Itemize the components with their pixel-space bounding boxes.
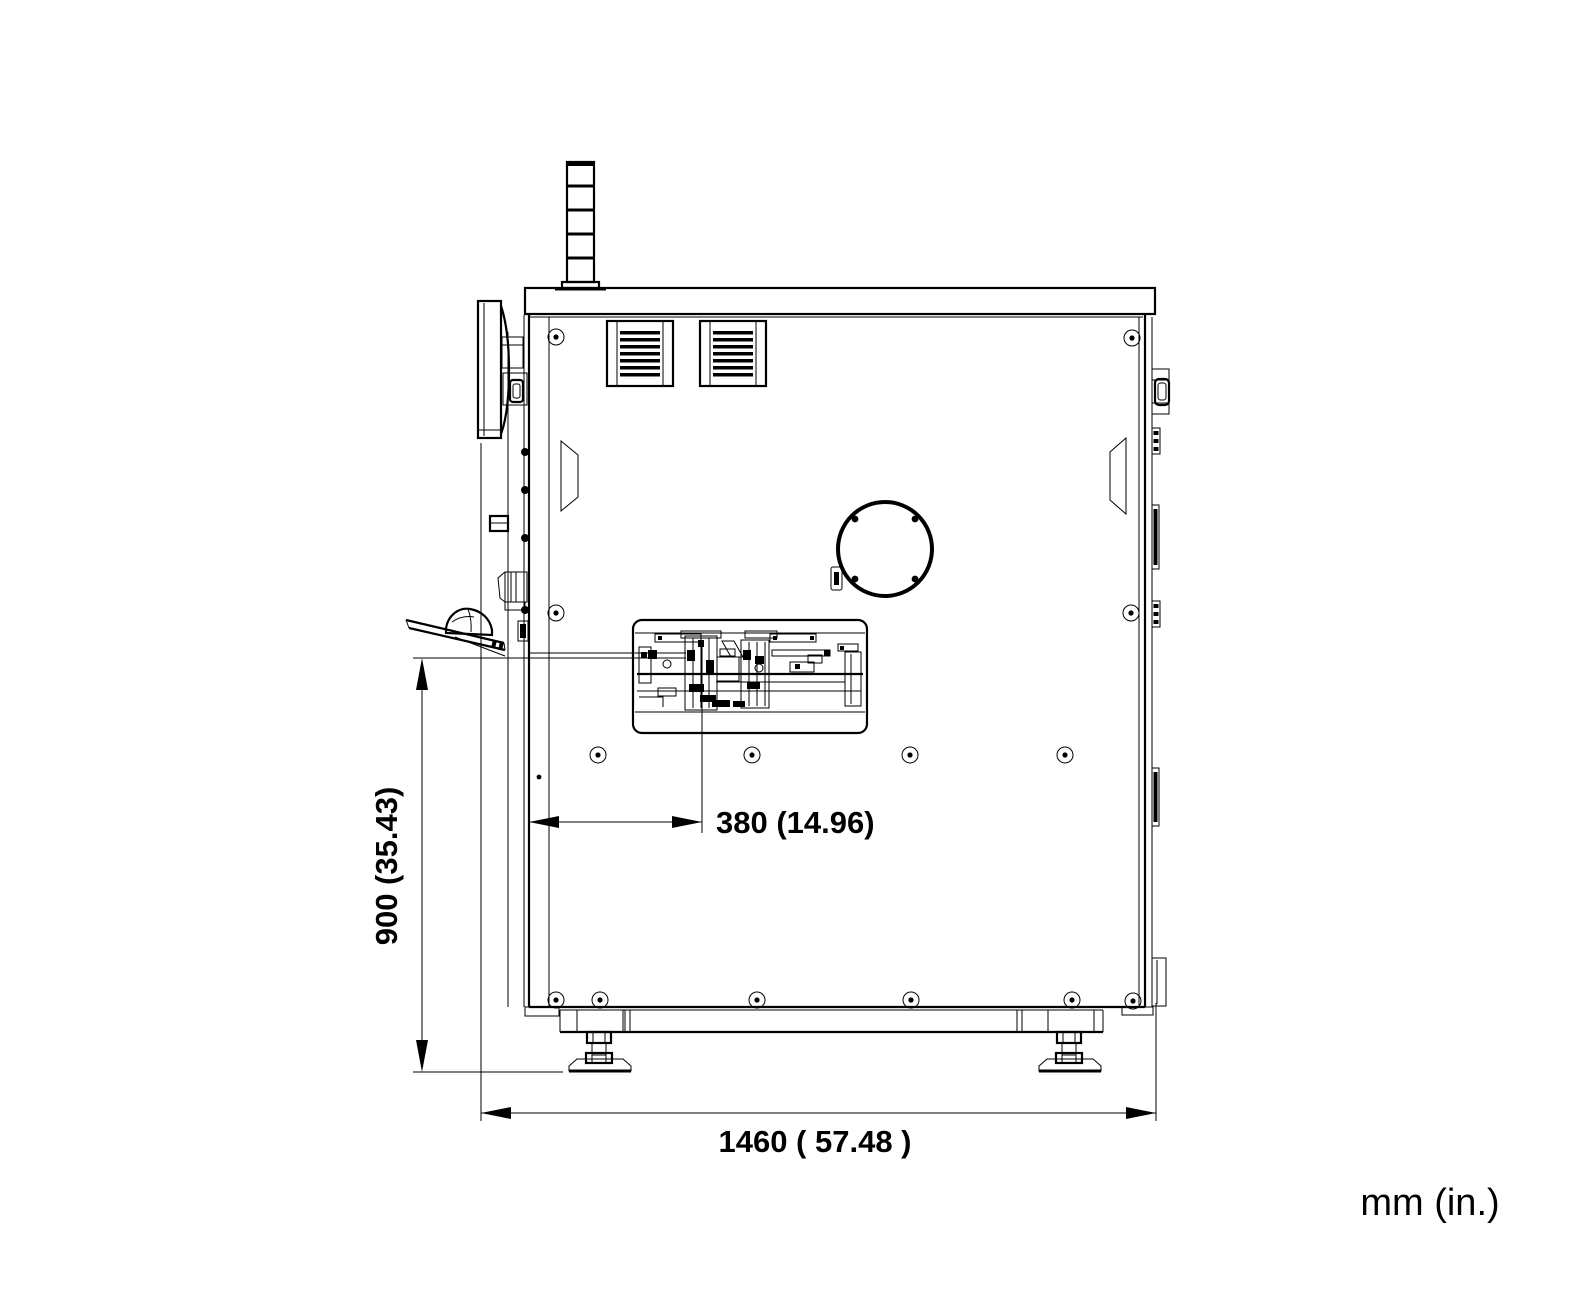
mechanism-carriage-right bbox=[741, 631, 777, 708]
leveling-foot-left bbox=[569, 1010, 631, 1071]
screw-icon bbox=[1057, 747, 1073, 763]
base-frame bbox=[560, 1010, 1103, 1032]
vent-right bbox=[700, 321, 766, 386]
rail-bump bbox=[521, 448, 529, 456]
small-screw-dot bbox=[537, 775, 542, 780]
hinge-strip bbox=[1152, 768, 1159, 826]
dimensions: 900 (35.43) 380 (14.96) 1460 ( 57.48 ) m… bbox=[369, 443, 1500, 1224]
hinge-strip bbox=[1152, 505, 1159, 569]
drawing-page: 900 (35.43) 380 (14.96) 1460 ( 57.48 ) m… bbox=[0, 0, 1576, 1301]
screw-icon bbox=[749, 992, 765, 1008]
screw-icon bbox=[902, 747, 918, 763]
screw-icon bbox=[592, 992, 608, 1008]
side-tab bbox=[490, 516, 508, 531]
dimension-height-label: 900 (35.43) bbox=[369, 787, 404, 946]
screw-icon bbox=[1124, 330, 1140, 346]
bottom-right-plate bbox=[1152, 958, 1166, 1006]
monitor-mount bbox=[502, 337, 527, 405]
panel-screws bbox=[537, 329, 1141, 1009]
machine-side-view-drawing: 900 (35.43) 380 (14.96) 1460 ( 57.48 ) m… bbox=[0, 0, 1576, 1301]
hinge-strip bbox=[1152, 601, 1160, 627]
screw-icon bbox=[548, 329, 564, 345]
dimension-width: 1460 ( 57.48 ) bbox=[481, 443, 1156, 1159]
screw-icon bbox=[903, 992, 919, 1008]
monitor bbox=[478, 301, 509, 438]
screw-icon bbox=[1064, 992, 1080, 1008]
rail-connector bbox=[518, 621, 528, 641]
top-cap bbox=[525, 288, 1155, 317]
machine bbox=[406, 162, 1169, 1071]
fan-port bbox=[838, 502, 932, 596]
dimension-offset: 380 (14.96) bbox=[529, 640, 875, 840]
screw-icon bbox=[590, 747, 606, 763]
dimension-height: 900 (35.43) bbox=[369, 658, 563, 1072]
vent-left bbox=[607, 321, 673, 386]
mechanism-carriage-left bbox=[681, 631, 721, 710]
hinge-strip bbox=[1152, 428, 1160, 454]
mechanism-window bbox=[529, 620, 867, 733]
tray-mount-bracket bbox=[498, 572, 527, 610]
aux-connector bbox=[831, 567, 842, 590]
latch-handle bbox=[1152, 369, 1169, 414]
rail-bump bbox=[521, 534, 529, 542]
leveling-foot-right bbox=[1039, 1010, 1101, 1071]
screw-icon bbox=[548, 605, 564, 621]
screw-icon bbox=[744, 747, 760, 763]
cabinet-body bbox=[508, 315, 1152, 1007]
dimension-width-label: 1460 ( 57.48 ) bbox=[718, 1124, 911, 1159]
screw-icon bbox=[548, 992, 564, 1008]
screw-icon bbox=[1123, 605, 1139, 621]
keyboard-tray bbox=[406, 609, 505, 656]
recessed-handle-left bbox=[561, 441, 578, 511]
units-label: mm (in.) bbox=[1360, 1182, 1499, 1224]
rail-bump bbox=[521, 486, 529, 494]
signal-tower bbox=[555, 162, 606, 289]
dimension-offset-label: 380 (14.96) bbox=[716, 805, 875, 840]
recessed-handle-right bbox=[1110, 438, 1126, 514]
corner-bracket-left bbox=[525, 1007, 559, 1016]
